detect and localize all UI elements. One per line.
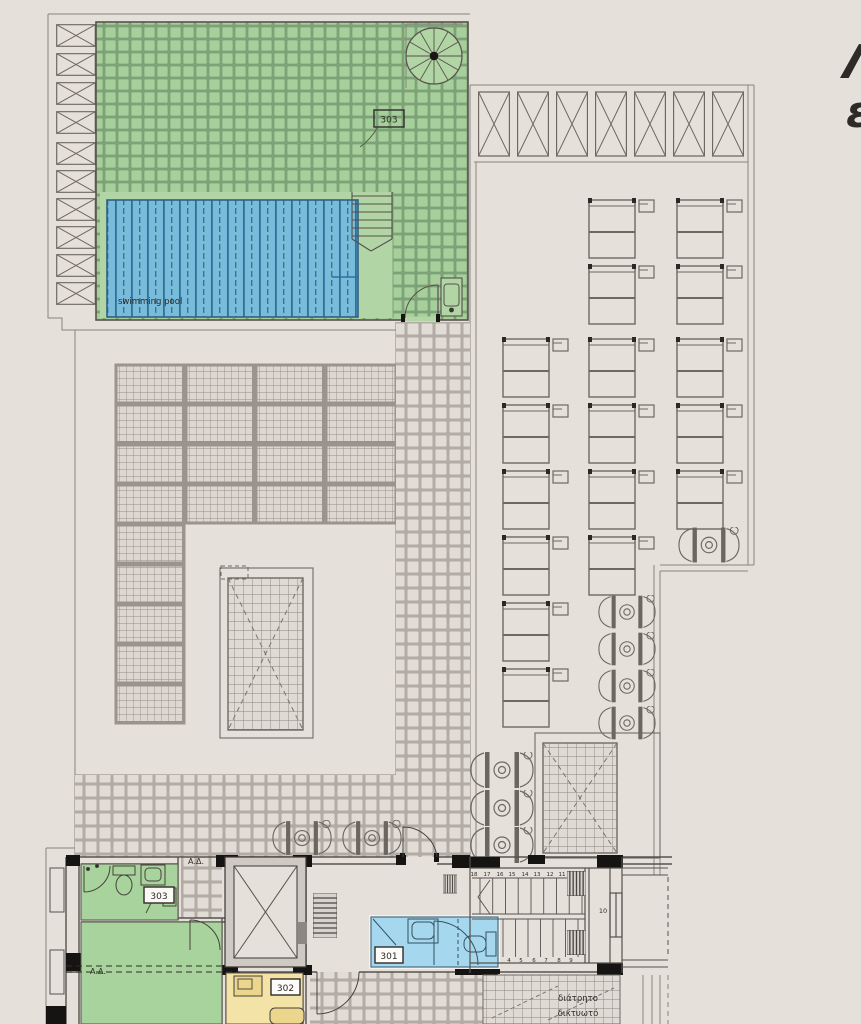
svg-text:8: 8 xyxy=(557,958,561,964)
staircase: 18 17 16 15 14 13 12 11 4 5 6 7 8 9 10 xyxy=(443,857,622,973)
floorplan-drawing: 303 swimming pool xyxy=(0,0,861,1024)
stair-grille-bottom xyxy=(567,930,586,955)
top-louver-row xyxy=(479,92,744,156)
svg-text:15: 15 xyxy=(509,872,516,878)
room-303-label: 303 xyxy=(150,892,167,902)
edge-glyph-1: Λ xyxy=(839,35,861,89)
svg-text:13: 13 xyxy=(534,872,541,878)
swimming-pool-label: swimming pool xyxy=(118,297,182,307)
lower-skylight xyxy=(535,733,660,858)
elevator-shaft xyxy=(225,857,307,967)
svg-text:12: 12 xyxy=(547,872,554,878)
room-301-label: 301 xyxy=(380,952,397,962)
roof-garden: 303 swimming pool xyxy=(96,22,468,322)
svg-text:16: 16 xyxy=(497,872,504,878)
svg-text:5: 5 xyxy=(519,958,523,964)
room-302: 302 xyxy=(226,973,304,1024)
left-balcony-columns xyxy=(50,868,64,994)
stair-grille-left xyxy=(443,875,457,893)
section-marker-mid: Α.Δ. xyxy=(90,967,106,976)
svg-text:δικτυωτό: δικτυωτό xyxy=(558,1008,599,1019)
edge-glyph-2: ε xyxy=(846,87,861,138)
room-301-label-box: 301 xyxy=(375,947,403,963)
svg-text:18: 18 xyxy=(471,872,478,878)
vent-grille xyxy=(313,893,337,938)
roof-shower-unit xyxy=(441,278,462,316)
roof-unit-label: 303 xyxy=(380,116,397,126)
central-skylight xyxy=(220,566,313,738)
section-marker-top: Α.Δ. xyxy=(188,857,204,866)
perforated-mesh-area: διάτρητο δικτυωτό πλέγμα xyxy=(483,975,668,1024)
svg-text:9: 9 xyxy=(569,958,573,964)
floorplan-sheet: 303 swimming pool xyxy=(0,0,861,1024)
svg-text:6: 6 xyxy=(532,958,536,964)
svg-text:14: 14 xyxy=(522,872,529,878)
stair-grille-top xyxy=(567,871,586,896)
stair-numbers-upper: 18 17 16 15 14 13 12 11 xyxy=(471,872,566,878)
stair-mid-number: 10 xyxy=(599,907,607,915)
cropped-title-glyphs: Λ ε xyxy=(839,35,861,138)
svg-text:17: 17 xyxy=(484,872,491,878)
svg-text:διάτρητο: διάτρητο xyxy=(558,994,598,1004)
svg-text:4: 4 xyxy=(507,958,511,964)
room-301: 301 xyxy=(369,915,500,969)
room-302-label: 302 xyxy=(277,984,294,994)
sun-loungers xyxy=(502,198,742,727)
room-302-label-box: 302 xyxy=(271,979,300,995)
svg-text:7: 7 xyxy=(544,958,548,964)
left-louver-column xyxy=(57,25,96,305)
svg-text:11: 11 xyxy=(559,872,566,878)
right-balcony xyxy=(622,868,668,967)
